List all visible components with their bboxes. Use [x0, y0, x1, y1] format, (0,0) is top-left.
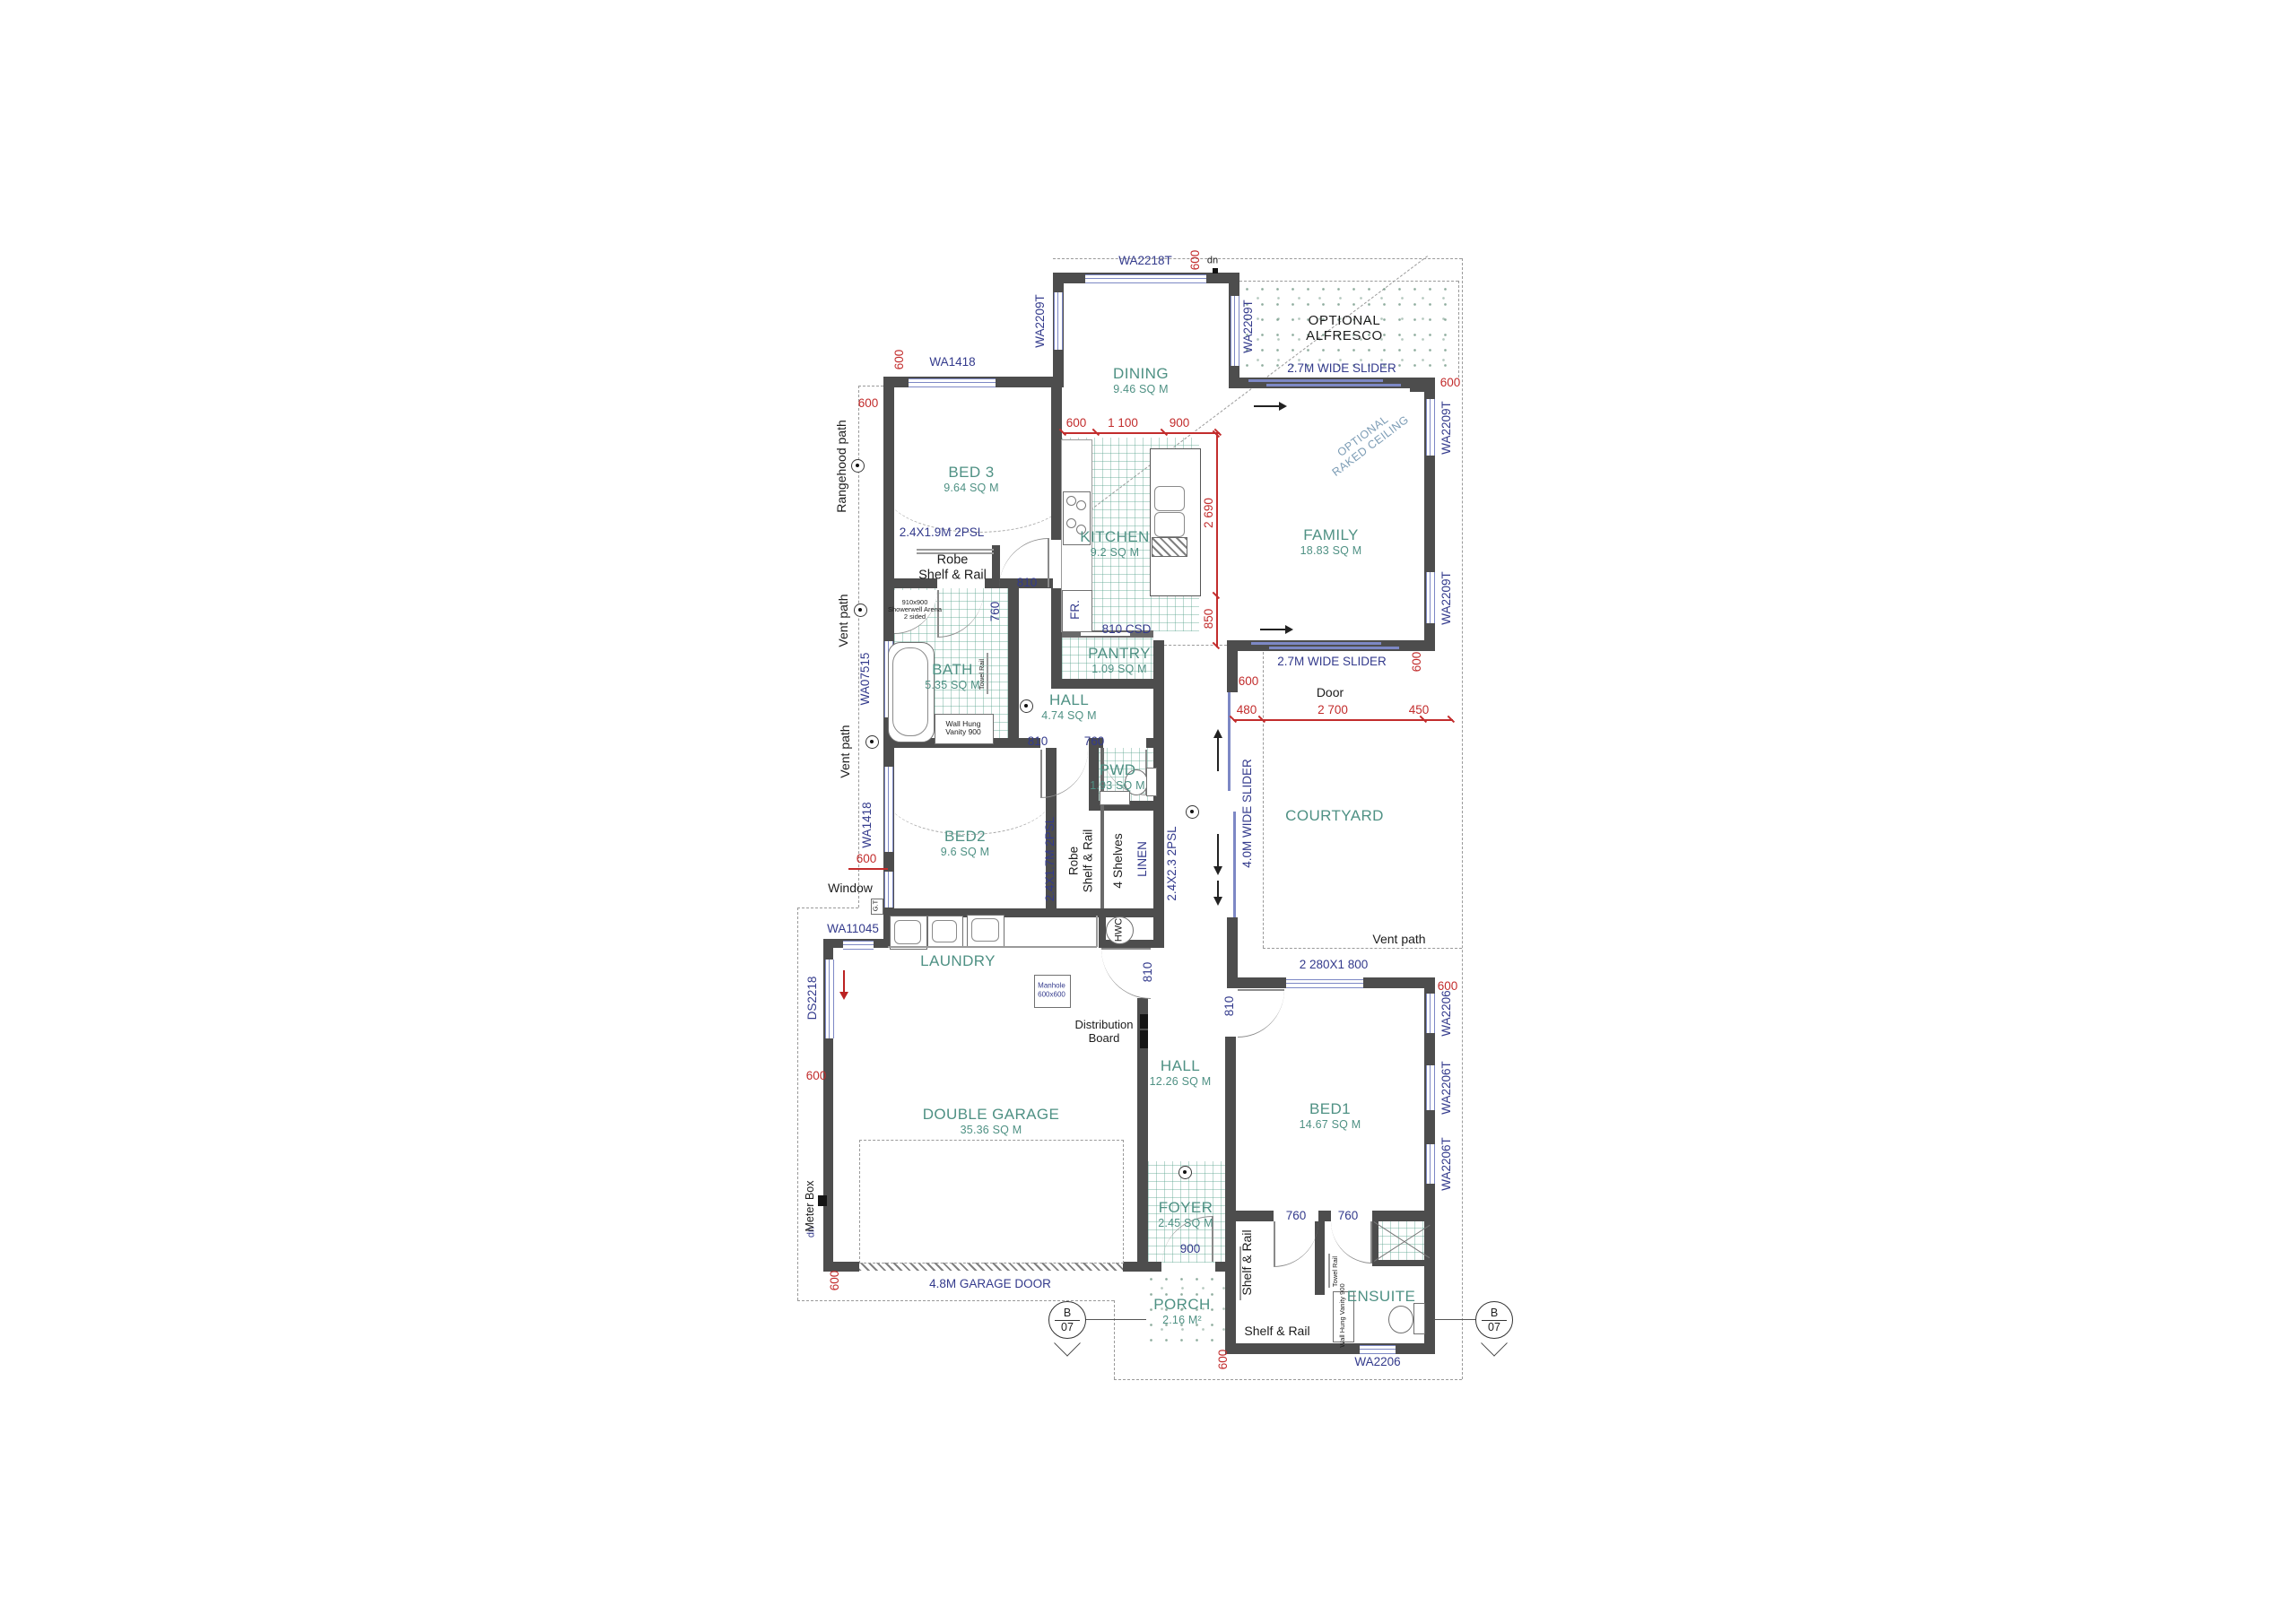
room-label-bed1: BED114.67 SQ M — [1300, 1100, 1361, 1131]
ceiling-fitting — [851, 459, 865, 473]
ceiling-fitting — [854, 604, 867, 617]
window-wa2206 — [1426, 994, 1435, 1033]
wall — [1051, 679, 1164, 689]
dim-480: 480 — [1237, 703, 1257, 717]
hall-arrow-head — [1213, 897, 1222, 906]
garage-door-opening — [859, 1263, 1123, 1271]
window-wa1418 — [909, 378, 996, 387]
window-label-wa07515: WA07515 — [858, 653, 873, 706]
section-line — [1433, 1319, 1476, 1320]
robe-rail — [917, 549, 994, 551]
hall-arrow — [1217, 881, 1219, 899]
door-width-760: 760 — [1084, 734, 1105, 749]
door-leaf-wir — [1274, 1221, 1275, 1266]
floor-plan-canvas: B 07 B 07 DINING9.46 SQ M FAMILY18.83 SQ… — [0, 0, 2296, 1624]
washing-machine-bowl — [894, 920, 921, 944]
dim-600: 600 — [1440, 376, 1461, 390]
ensuite-toilet-tank — [1413, 1303, 1425, 1334]
towel-rail-note: Towel Rail — [978, 659, 986, 690]
door-arc-wir — [1274, 1221, 1318, 1267]
window-label-wa2206t: WA2206T — [1439, 1061, 1454, 1115]
room-label-pantry: PANTRY1.09 SQ M — [1088, 645, 1151, 675]
door-width-760: 760 — [1338, 1209, 1359, 1223]
towel-rail — [1328, 1254, 1330, 1288]
slider-arrow-head — [1279, 402, 1287, 411]
raked-ceiling-label: OPTIONAL RAKED CEILING — [1322, 404, 1412, 480]
meter-box — [818, 1195, 827, 1206]
window-small — [884, 872, 893, 908]
alfresco-label: OPTIONAL ALFRESCO — [1306, 313, 1383, 344]
dim-line — [1063, 432, 1220, 434]
shelf-rail-label: Shelf & Rail — [1244, 1324, 1309, 1338]
garage-door-label: 4.8M GARAGE DOOR — [929, 1277, 1051, 1291]
dim-1100: 1 100 — [1108, 416, 1138, 430]
window-label-wa2209t: WA2209T — [1439, 571, 1454, 625]
section-marker-b07: B 07 — [1048, 1301, 1086, 1339]
dim-2700: 2 700 — [1318, 703, 1348, 717]
ceiling-fitting — [1020, 699, 1033, 713]
boundary-line — [858, 386, 883, 386]
boundary-line — [1462, 258, 1463, 1379]
window-note: Window — [828, 881, 873, 895]
wall — [1227, 917, 1238, 977]
room-label-laundry: LAUNDRY — [920, 952, 996, 970]
dim-900: 900 — [1170, 416, 1190, 430]
dim-850: 850 — [1202, 609, 1216, 630]
window-wa11045 — [843, 941, 874, 950]
vent-arrow-head — [839, 992, 848, 1000]
dim-600: 600 — [1066, 416, 1087, 430]
courtyard-boundary — [1263, 647, 1264, 948]
shower-wall — [1372, 1260, 1428, 1266]
ensuite-toilet-bowl — [1388, 1306, 1413, 1333]
garage-car-space — [859, 1140, 1124, 1264]
ceiling-fitting — [1178, 1166, 1192, 1179]
towel-rail-note: Towel Rail — [1332, 1256, 1339, 1287]
washing-machine-bowl — [932, 920, 957, 942]
boundary-line — [1114, 1300, 1115, 1379]
vent-path-label: Vent path — [836, 594, 850, 647]
door-width-760: 760 — [988, 602, 1003, 622]
dn-label: dn — [1207, 256, 1218, 267]
robe-label: Robe Shelf & Rail — [918, 552, 987, 582]
courtyard-boundary — [1263, 948, 1462, 949]
door-leaf-bed2 — [1040, 750, 1042, 797]
door-width-810: 810 — [1017, 576, 1038, 590]
shelves-label: 4 Shelves — [1110, 833, 1125, 888]
robe-size-label: 2.4X2.3 2PSL — [1165, 826, 1179, 900]
section-number: 07 — [1482, 1320, 1507, 1333]
vent-path-curve — [886, 758, 1052, 835]
window-label-wa1418: WA1418 — [860, 802, 874, 847]
wall — [1008, 588, 1019, 739]
section-letter: B — [1064, 1307, 1071, 1319]
window-wa2206 — [1360, 1345, 1396, 1354]
boundary-line — [1114, 1379, 1462, 1380]
door-arc-bed2 — [1040, 750, 1088, 798]
window-label-wa2206: WA2206 — [1354, 1355, 1400, 1369]
vanity-note: Wall Hung Vanity 900 — [945, 720, 981, 736]
vent-path-label: Vent path — [1372, 932, 1425, 946]
alfresco-slider — [1266, 384, 1401, 386]
shower-note: 910x900 Showerwell Arena 2 sided — [888, 599, 942, 621]
ceiling-fitting — [1186, 805, 1199, 819]
bathtub-inner — [892, 647, 928, 736]
wall — [1227, 977, 1286, 988]
alfresco-outline — [1458, 281, 1459, 378]
dim-600: 600 — [1239, 674, 1259, 689]
door-leaf-ensuite — [1370, 1221, 1372, 1263]
section-letter: B — [1491, 1307, 1498, 1319]
dishwasher — [1152, 537, 1187, 557]
window-2280x1800 — [1286, 979, 1363, 988]
wall — [1123, 1262, 1161, 1272]
door-width-810: 810 — [1222, 996, 1237, 1017]
robe-shelf-rail-label: Robe Shelf & Rail — [1066, 829, 1094, 893]
room-label-porch: PORCH2.16 M² — [1153, 1296, 1210, 1326]
room-label-hall2: HALL12.26 SQ M — [1150, 1057, 1212, 1088]
window-label-wa2206: WA2206 — [1439, 990, 1454, 1036]
window-wa1418 — [884, 767, 893, 852]
section-number: 07 — [1055, 1320, 1080, 1333]
door-leaf-bed1 — [1238, 989, 1284, 991]
oven — [1154, 512, 1185, 537]
pwd-toilet-tank — [1146, 768, 1157, 796]
dim-600: 600 — [857, 852, 877, 866]
dim-600: 600 — [1438, 979, 1458, 994]
manhole-label: Manhole 600x600 — [1038, 981, 1065, 998]
door-arc-bed1 — [1238, 990, 1284, 1038]
window-label-wa2218t: WA2218T — [1118, 254, 1172, 268]
distribution-board-switch — [1140, 1030, 1148, 1048]
room-label-bath: BATH5.35 SQ M — [925, 661, 980, 691]
wall — [1153, 909, 1164, 948]
burner — [1066, 496, 1076, 506]
hall-arrow — [1217, 737, 1219, 771]
window-label-wa2206t: WA2206T — [1439, 1137, 1454, 1191]
door-width-810: 810 — [1028, 734, 1048, 749]
room-label-kitchen: KITCHEN9.2 SQ M — [1080, 528, 1149, 559]
room-label-bed2: BED29.6 SQ M — [941, 828, 989, 858]
door-leaf-bed3 — [1048, 538, 1049, 587]
hwc-label: HWC — [1113, 918, 1125, 942]
door-ds2218 — [825, 960, 834, 1038]
window-label-wa1418: WA1418 — [929, 355, 975, 369]
door-label-810csd: 810 CSD — [1102, 622, 1152, 637]
boundary-line — [797, 908, 798, 1300]
door-width-810: 810 — [1141, 962, 1155, 983]
wall — [1225, 1343, 1435, 1354]
dim-600: 600 — [858, 396, 879, 411]
family-slider — [1269, 647, 1399, 649]
slider-arrow — [1260, 629, 1285, 630]
laundry-bench-edge — [888, 946, 1097, 948]
burner — [1076, 500, 1086, 510]
slider-4m — [1233, 812, 1236, 917]
distribution-board-switch — [1140, 1014, 1148, 1029]
window-label-wa2209t: WA2209T — [1439, 401, 1454, 455]
room-label-hall: HALL4.74 SQ M — [1041, 691, 1097, 722]
window-label-wa2209t: WA2209T — [1033, 294, 1048, 348]
slider-label: 2.7M WIDE SLIDER — [1277, 655, 1387, 669]
oven — [1154, 486, 1185, 511]
window-wa2209t — [1426, 399, 1435, 456]
door-label-ds2218: DS2218 — [805, 977, 820, 1020]
dim-600: 600 — [806, 1069, 827, 1083]
window-label-wa11045: WA11045 — [827, 922, 879, 936]
gt-label: G.T — [873, 900, 881, 912]
window-wa2209t — [1426, 572, 1435, 623]
wall — [1236, 1211, 1274, 1221]
window-label-wa2209t: WA2209T — [1241, 300, 1256, 353]
laundry-tub-bowl — [971, 918, 999, 942]
slider-arrow — [1254, 405, 1279, 407]
slider-arrow-head — [1285, 625, 1293, 634]
window-wa2206t — [1426, 1065, 1435, 1110]
fridge-label: FR. — [1068, 600, 1083, 620]
wall — [1225, 1037, 1236, 1352]
section-line — [1085, 1319, 1146, 1320]
room-label-garage: DOUBLE GARAGE35.36 SQ M — [923, 1106, 1060, 1136]
towel-rail — [987, 653, 988, 694]
vanity-note: Wall Hung Vanity 900 — [1339, 1283, 1346, 1347]
room-label-pwd: PWD1.93 SQ M — [1090, 761, 1145, 792]
laundry-bench-edge — [1096, 916, 1098, 947]
vent-arrow — [843, 970, 845, 994]
distribution-board-label: Distribution Board — [1074, 1019, 1133, 1046]
window-wa2209t — [1231, 296, 1239, 366]
pwd-basin — [1100, 791, 1130, 805]
door-label: Door — [1317, 685, 1344, 699]
slider-label: 2.7M WIDE SLIDER — [1287, 361, 1396, 376]
hall-arrow-head — [1213, 729, 1222, 738]
door-width-900: 900 — [1180, 1242, 1201, 1256]
burner — [1066, 518, 1076, 528]
meter-box-label: Meter Box — [804, 1181, 816, 1232]
window-wa2206t — [1426, 1144, 1435, 1184]
room-label-dining: DINING9.46 SQ M — [1113, 365, 1169, 395]
section-marker-b07: B 07 — [1475, 1301, 1513, 1339]
dim-600: 600 — [892, 350, 907, 370]
door-leaf-laundry — [1101, 948, 1151, 950]
dim-line — [1216, 434, 1218, 647]
dim-600: 600 — [1216, 1350, 1231, 1370]
hall-arrow-head — [1213, 866, 1222, 875]
room-label-bed3: BED 39.64 SQ M — [944, 464, 999, 494]
boundary-line — [1053, 258, 1462, 259]
slider-4m — [1228, 692, 1231, 791]
alfresco-slider — [1248, 379, 1383, 382]
room-label-foyer: FOYER2.45 SQ M — [1158, 1199, 1213, 1229]
rangehood-path-label: Rangehood path — [834, 420, 848, 513]
wall — [1410, 378, 1435, 392]
window-label-2280x1800: 2 280X1 800 — [1300, 958, 1369, 972]
dim-line — [848, 868, 888, 870]
wall — [992, 545, 1000, 583]
slider-label-4m: 4.0M WIDE SLIDER — [1240, 759, 1255, 868]
robe-size-label: 2.4X1.9M 2PSL — [900, 525, 985, 540]
door-width-760: 760 — [1286, 1209, 1307, 1223]
hall-arrow — [1217, 834, 1219, 868]
wall — [1318, 1211, 1331, 1221]
dim-600: 600 — [1410, 652, 1424, 673]
dim-2690: 2 690 — [1202, 498, 1216, 528]
room-label-ensuite: ENSUITE — [1347, 1288, 1415, 1306]
family-slider — [1251, 642, 1381, 645]
ceiling-fitting — [865, 735, 879, 749]
vent-path-label: Vent path — [838, 725, 852, 777]
dim-line — [1233, 719, 1453, 721]
dim-600: 600 — [828, 1271, 842, 1291]
room-label-courtyard: COURTYARD — [1285, 807, 1384, 825]
dim-600: 600 — [1188, 250, 1203, 271]
boundary-line — [797, 908, 858, 908]
shelf-rail-label: Shelf & Rail — [1239, 1229, 1254, 1295]
window-wa2209t — [1054, 292, 1063, 350]
window-wa2218t — [1085, 274, 1206, 283]
robe-size-label: 2.4X1.7M 2PSL — [1043, 817, 1057, 902]
dim-450: 450 — [1409, 703, 1430, 717]
room-label-family: FAMILY18.83 SQ M — [1300, 526, 1362, 557]
datum-dot — [1213, 268, 1218, 274]
linen-label: LINEN — [1135, 841, 1150, 877]
